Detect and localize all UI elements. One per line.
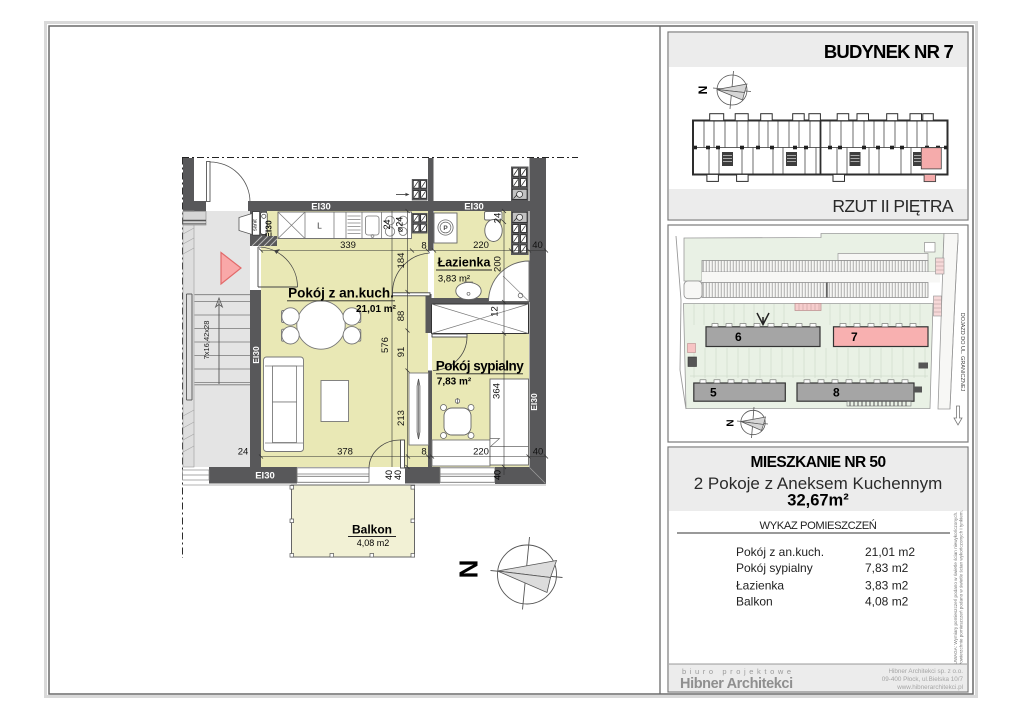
- svg-text:40: 40: [493, 470, 503, 480]
- svg-text:Łazienka: Łazienka: [438, 256, 492, 270]
- svg-text:Powierzchnie pomieszczeń podan: Powierzchnie pomieszczeń podano w świetl…: [959, 510, 964, 666]
- svg-text:184: 184: [396, 253, 407, 269]
- svg-text:N: N: [453, 560, 483, 579]
- svg-text:200: 200: [493, 256, 504, 272]
- svg-text:220: 220: [473, 240, 489, 251]
- svg-text:Łazienka: Łazienka: [736, 579, 784, 593]
- svg-text:EI30: EI30: [264, 220, 274, 238]
- svg-text:www.hibnerarchitekci.pl: www.hibnerarchitekci.pl: [896, 684, 963, 691]
- svg-text:24: 24: [493, 213, 504, 224]
- svg-text:32,67m²: 32,67m²: [787, 492, 849, 510]
- svg-text:EI30: EI30: [529, 393, 539, 411]
- svg-text:220: 220: [473, 447, 489, 458]
- svg-text:RZUT II PIĘTRA: RZUT II PIĘTRA: [832, 196, 954, 216]
- svg-text:91: 91: [396, 347, 407, 358]
- svg-text:2 Pokoje z Aneksem Kuchennym: 2 Pokoje z Aneksem Kuchennym: [694, 474, 943, 493]
- svg-text:N: N: [726, 419, 737, 426]
- svg-text:EI30: EI30: [464, 201, 484, 212]
- svg-text:88: 88: [396, 311, 407, 322]
- svg-text:3,83 m²: 3,83 m²: [438, 274, 470, 285]
- svg-text:8: 8: [421, 241, 426, 252]
- svg-text:40: 40: [393, 470, 403, 480]
- svg-text:40: 40: [533, 447, 544, 458]
- svg-text:Hibner Architekci sp. z o.o.: Hibner Architekci sp. z o.o.: [888, 668, 963, 675]
- svg-text:⌀24: ⌀24: [395, 217, 405, 232]
- svg-text:24: 24: [238, 447, 249, 458]
- svg-text:4,08 m2: 4,08 m2: [865, 595, 909, 609]
- svg-text:EI30: EI30: [255, 471, 275, 482]
- svg-text:P: P: [443, 225, 448, 232]
- svg-text:Pokój sypialny: Pokój sypialny: [436, 359, 525, 374]
- svg-text:8: 8: [833, 386, 840, 400]
- svg-text:WYKAZ POMIESZCZEŃ: WYKAZ POMIESZCZEŃ: [760, 519, 877, 532]
- svg-text:UWAGA: Wymiary pomieszczeń pod: UWAGA: Wymiary pomieszczeń podano w świe…: [953, 512, 958, 665]
- svg-text:Hibner Architekci: Hibner Architekci: [680, 676, 793, 692]
- svg-text:N: N: [696, 86, 710, 95]
- svg-text:sanit: sanit: [253, 219, 259, 231]
- svg-text:5: 5: [710, 386, 717, 400]
- svg-text:4,08 m2: 4,08 m2: [357, 538, 390, 548]
- svg-text:6: 6: [735, 330, 742, 344]
- svg-text:8: 8: [421, 447, 426, 458]
- svg-text:Balkon: Balkon: [736, 595, 773, 609]
- svg-text:EI30: EI30: [251, 346, 261, 364]
- svg-text:40: 40: [532, 240, 543, 251]
- svg-text:7x16,42x28: 7x16,42x28: [202, 321, 211, 360]
- svg-text:364: 364: [492, 383, 503, 399]
- svg-text:576: 576: [380, 337, 391, 353]
- svg-text:EI30: EI30: [311, 201, 331, 212]
- svg-text:24: 24: [382, 219, 392, 229]
- svg-text:Pokój z an.kuch.: Pokój z an.kuch.: [288, 286, 394, 301]
- svg-text:7,83 m²: 7,83 m²: [437, 377, 472, 388]
- svg-text:MIESZKANIE NR 50: MIESZKANIE NR 50: [750, 454, 885, 471]
- svg-text:7,83 m2: 7,83 m2: [865, 561, 909, 575]
- svg-text:21,01 m²: 21,01 m²: [356, 304, 397, 315]
- svg-text:L: L: [317, 221, 322, 231]
- svg-text:Balkon: Balkon: [352, 523, 392, 537]
- svg-text:Pokój z an.kuch.: Pokój z an.kuch.: [736, 545, 824, 559]
- svg-text:12: 12: [490, 306, 501, 317]
- svg-text:213: 213: [396, 410, 407, 426]
- svg-text:7: 7: [851, 330, 858, 344]
- svg-text:BUDYNEK NR 7: BUDYNEK NR 7: [824, 41, 954, 62]
- svg-text:biuro projektowe: biuro projektowe: [682, 667, 795, 676]
- svg-text:09-400 Płock, ul.Bielska 10/7: 09-400 Płock, ul.Bielska 10/7: [882, 676, 964, 683]
- svg-text:21,01 m2: 21,01 m2: [865, 545, 915, 559]
- svg-text:378: 378: [337, 447, 353, 458]
- svg-text:DOJAZD DO UL. GRANICZNEJ: DOJAZD DO UL. GRANICZNEJ: [959, 313, 965, 392]
- svg-text:339: 339: [340, 240, 356, 251]
- svg-text:3,83 m2: 3,83 m2: [865, 579, 909, 593]
- svg-text:Pokój sypialny: Pokój sypialny: [736, 561, 813, 575]
